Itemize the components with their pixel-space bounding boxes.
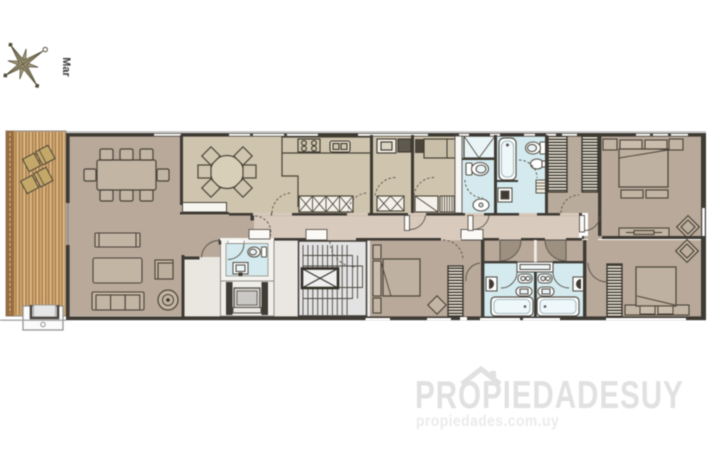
svg-text:Mar: Mar [60, 57, 72, 77]
svg-text:propiedades.com.uy: propiedades.com.uy [416, 412, 559, 430]
svg-text:PROPIEDADESUY: PROPIEDADESUY [415, 374, 684, 417]
